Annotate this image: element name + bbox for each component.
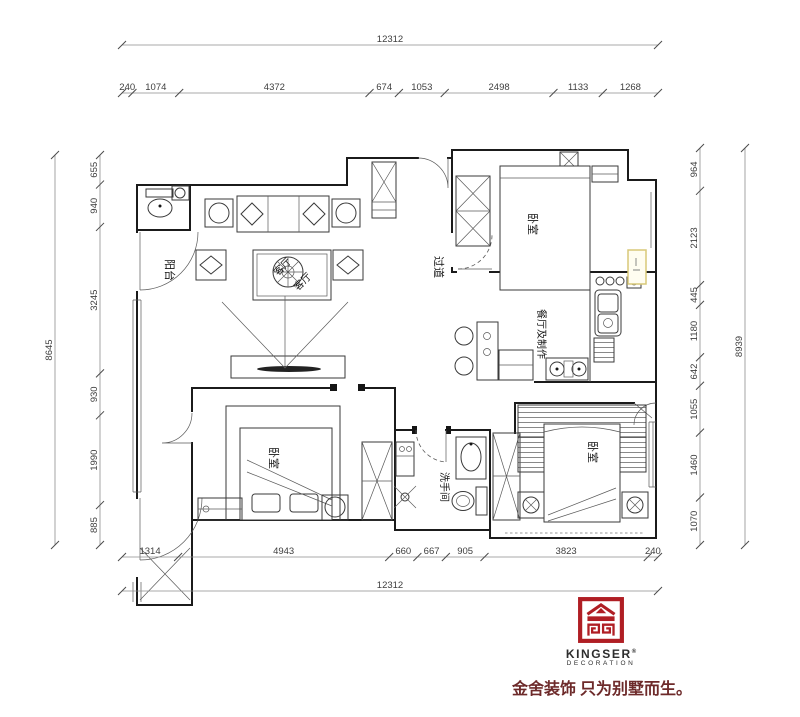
label-hallway: 过道	[432, 256, 446, 278]
svg-text:674: 674	[376, 82, 392, 93]
label-dining-kitchen: 餐厅及制作	[535, 309, 548, 359]
coffee-table	[253, 250, 331, 300]
entry-cabinet	[372, 162, 396, 218]
kingser-emblem-icon	[577, 596, 625, 644]
svg-text:3823: 3823	[556, 546, 577, 557]
svg-text:1460: 1460	[689, 454, 700, 475]
svg-text:3245: 3245	[89, 290, 100, 311]
svg-text:660: 660	[395, 546, 411, 557]
brand-division: DECORATION	[512, 660, 690, 668]
svg-text:4372: 4372	[264, 82, 285, 93]
label-bedroom-top-right: 卧室	[526, 213, 540, 235]
flue-highlight-box	[628, 250, 646, 284]
svg-text:1314: 1314	[139, 546, 160, 557]
small-bathroom	[146, 186, 189, 217]
svg-text:1180: 1180	[689, 321, 700, 341]
svg-text:8645: 8645	[44, 339, 55, 360]
svg-text:1990: 1990	[89, 450, 100, 471]
svg-text:655: 655	[89, 162, 100, 178]
svg-text:1133: 1133	[568, 82, 588, 93]
svg-text:930: 930	[89, 386, 100, 402]
label-bathroom: 洗手间	[438, 472, 451, 502]
svg-text:964: 964	[689, 161, 700, 177]
svg-text:1268: 1268	[620, 82, 641, 93]
svg-text:1055: 1055	[689, 399, 700, 420]
company-logo: KINGSER® DECORATION 金舍装饰 只为别墅而生。	[512, 596, 690, 699]
svg-text:642: 642	[689, 364, 700, 380]
label-bedroom-bottom-right: 卧室	[586, 441, 600, 463]
svg-text:4943: 4943	[273, 546, 294, 557]
floor-plan-page: { "dimensions": { "top": {"overall": "12…	[0, 0, 800, 717]
svg-text:2123: 2123	[689, 227, 700, 248]
svg-text:1070: 1070	[689, 511, 700, 532]
brand-name: KINGSER®	[512, 646, 690, 660]
tv-console	[222, 296, 348, 378]
svg-text:8939: 8939	[734, 336, 745, 357]
svg-text:240: 240	[119, 82, 135, 93]
registered-mark: ®	[632, 649, 636, 655]
svg-text:885: 885	[89, 517, 100, 533]
svg-text:940: 940	[89, 198, 100, 214]
svg-text:240: 240	[645, 546, 661, 557]
svg-text:1074: 1074	[145, 82, 166, 93]
label-balcony: 阳台	[163, 259, 177, 281]
bedroom-bottom-right	[493, 405, 648, 522]
dimension-annotations: 1231224010744372674105324981133126813144…	[44, 34, 749, 595]
brand-tagline: 金舍装饰 只为别墅而生。	[512, 675, 690, 699]
bedroom-bottom-left	[198, 406, 392, 520]
svg-text:12312: 12312	[377, 34, 403, 45]
svg-text:1053: 1053	[411, 82, 432, 93]
svg-text:445: 445	[689, 287, 700, 303]
dining-set	[455, 322, 533, 380]
svg-text:667: 667	[424, 546, 440, 557]
label-bedroom-bottom-left: 卧室	[267, 447, 281, 469]
svg-text:2498: 2498	[489, 82, 510, 93]
svg-text:905: 905	[457, 546, 473, 557]
svg-text:12312: 12312	[377, 580, 403, 591]
